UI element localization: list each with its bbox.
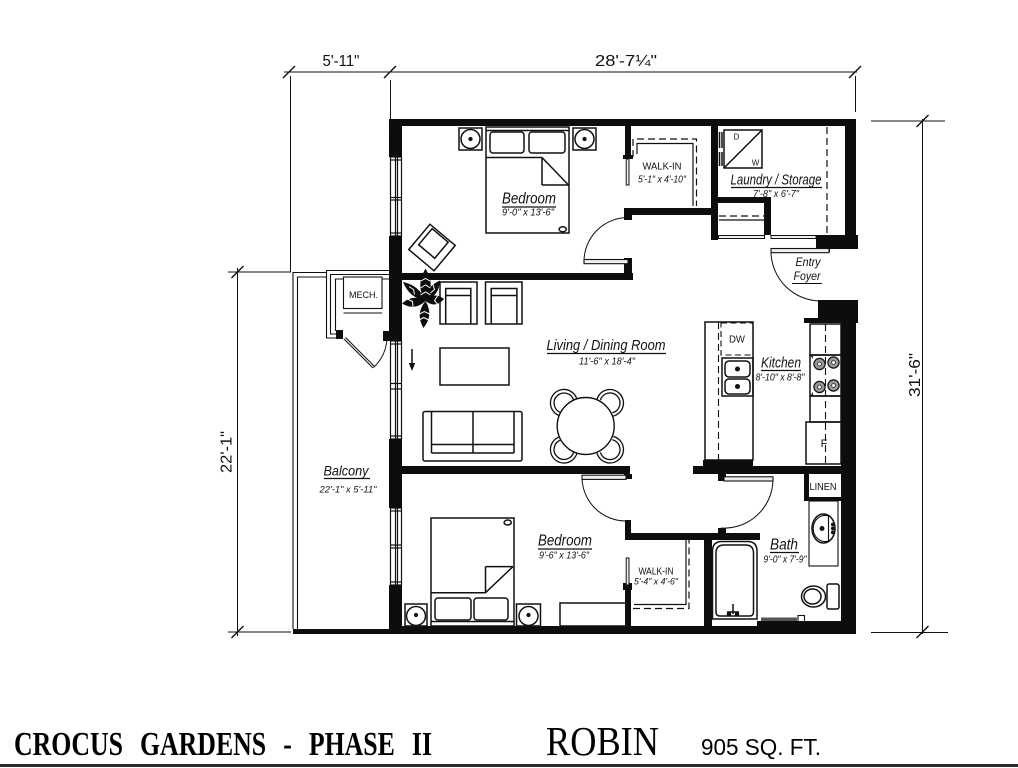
svg-text:9'-6" x 13'-6": 9'-6" x 13'-6" [539, 550, 590, 562]
svg-text:5'-4" x 4'-6": 5'-4" x 4'-6" [634, 577, 679, 588]
svg-text:CROCUS GARDENS - PHASE II: CROCUS GARDENS - PHASE II [14, 726, 432, 763]
svg-text:5'-11": 5'-11" [323, 53, 360, 70]
svg-text:WALK-IN: WALK-IN [643, 162, 682, 173]
svg-text:Laundry / Storage: Laundry / Storage [731, 173, 822, 189]
svg-text:905 SQ. FT.: 905 SQ. FT. [701, 734, 821, 760]
svg-text:Bedroom: Bedroom [502, 191, 556, 208]
svg-text:Bedroom: Bedroom [538, 533, 592, 550]
svg-text:Entry: Entry [796, 255, 822, 269]
svg-text:22'-1" x 5'-11": 22'-1" x 5'-11" [319, 485, 378, 496]
svg-text:DW: DW [729, 335, 746, 346]
svg-text:F: F [821, 438, 828, 450]
svg-text:D: D [734, 133, 740, 142]
svg-text:Bath: Bath [770, 537, 798, 554]
svg-text:8'-10" x 8'-8": 8'-10" x 8'-8" [756, 372, 806, 384]
svg-text:MECH.: MECH. [349, 290, 378, 300]
svg-text:22'-1": 22'-1" [219, 431, 236, 473]
svg-text:7'-8" x 6'-7": 7'-8" x 6'-7" [753, 188, 800, 200]
svg-text:Kitchen: Kitchen [761, 356, 801, 372]
svg-text:Balcony: Balcony [324, 463, 370, 479]
svg-text:31'-6": 31'-6" [907, 353, 924, 397]
svg-text:9'-0" x 13'-6": 9'-0" x 13'-6" [502, 207, 555, 219]
svg-text:5'-1" x 4'-10": 5'-1" x 4'-10" [638, 175, 686, 186]
svg-text:11'-6" x 18'-4": 11'-6" x 18'-4" [579, 356, 636, 368]
svg-text:28'-7¼": 28'-7¼" [595, 53, 657, 70]
svg-text:Foyer: Foyer [794, 269, 822, 283]
svg-text:ROBIN: ROBIN [546, 718, 659, 764]
svg-text:9'-0" x 7'-9": 9'-0" x 7'-9" [764, 555, 807, 566]
svg-text:W: W [752, 159, 760, 168]
svg-text:Living / Dining Room: Living / Dining Room [547, 337, 666, 354]
svg-text:LINEN: LINEN [810, 482, 837, 493]
